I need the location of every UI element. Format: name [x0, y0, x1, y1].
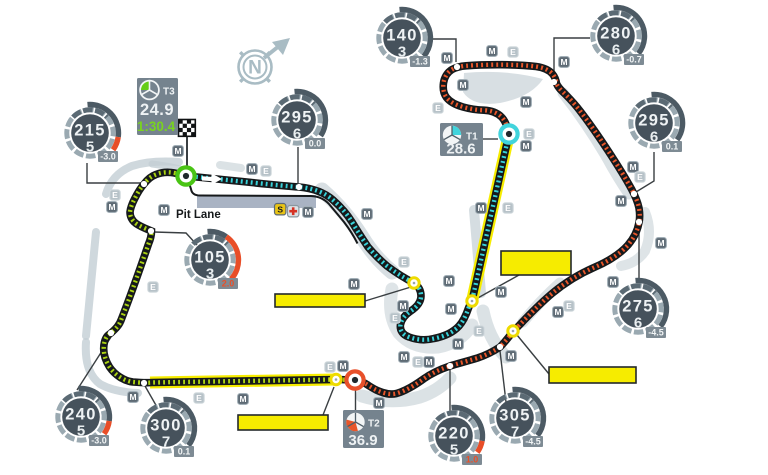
svg-text:M: M — [459, 80, 466, 90]
svg-text:36.9: 36.9 — [348, 432, 377, 449]
svg-text:M: M — [160, 205, 167, 215]
svg-text:M: M — [363, 209, 370, 219]
svg-text:E: E — [476, 326, 482, 336]
svg-text:M: M — [522, 141, 529, 151]
svg-text:240: 240 — [65, 406, 96, 424]
svg-text:M: M — [454, 339, 461, 349]
svg-text:M: M — [560, 57, 567, 67]
svg-text:1:30.4: 1:30.4 — [137, 119, 176, 134]
svg-text:M: M — [248, 164, 255, 174]
svg-text:0.0: 0.0 — [309, 139, 322, 149]
svg-text:E: E — [150, 282, 156, 292]
svg-text:M: M — [174, 146, 181, 156]
svg-text:M: M — [304, 207, 311, 217]
svg-text:E: E — [435, 103, 441, 113]
svg-text:M: M — [629, 162, 636, 172]
svg-text:5: 5 — [86, 139, 94, 156]
svg-text:E: E — [526, 129, 532, 139]
svg-text:M: M — [488, 46, 495, 56]
svg-text:M: M — [477, 203, 484, 213]
svg-text:M: M — [617, 196, 624, 206]
svg-text:280: 280 — [600, 25, 631, 43]
svg-text:-4.5: -4.5 — [525, 437, 541, 447]
svg-text:E: E — [263, 166, 269, 176]
svg-text:M: M — [657, 238, 664, 248]
svg-text:M: M — [447, 304, 454, 314]
svg-text:300: 300 — [150, 417, 181, 435]
svg-text:305: 305 — [499, 407, 530, 425]
svg-text:220: 220 — [438, 425, 469, 443]
svg-text:7: 7 — [511, 424, 519, 441]
svg-text:295: 295 — [638, 112, 669, 130]
svg-text:3: 3 — [206, 266, 214, 283]
svg-text:M: M — [108, 202, 115, 212]
svg-text:0.1: 0.1 — [178, 447, 191, 457]
svg-text:E: E — [196, 393, 202, 403]
svg-text:24.9: 24.9 — [140, 101, 174, 119]
svg-text:M: M — [425, 357, 432, 367]
svg-text:M: M — [339, 361, 346, 371]
svg-text:E: E — [392, 313, 398, 323]
svg-text:-4.5: -4.5 — [648, 328, 664, 338]
svg-text:E: E — [327, 362, 333, 372]
svg-text:0.1: 0.1 — [666, 142, 679, 152]
svg-text:6: 6 — [650, 129, 658, 146]
svg-text:T3: T3 — [163, 87, 175, 98]
svg-text:M: M — [609, 277, 616, 287]
svg-text:Pit Lane: Pit Lane — [176, 209, 221, 221]
svg-text:-3.0: -3.0 — [91, 436, 107, 446]
svg-text:6: 6 — [293, 126, 301, 143]
svg-text:215: 215 — [74, 122, 105, 140]
svg-text:6: 6 — [612, 42, 620, 59]
svg-text:M: M — [399, 301, 406, 311]
svg-text:140: 140 — [386, 27, 417, 45]
svg-text:1.0: 1.0 — [466, 455, 479, 465]
svg-text:5: 5 — [77, 423, 85, 440]
svg-text:M: M — [400, 352, 407, 362]
svg-text:E: E — [566, 301, 572, 311]
svg-text:M: M — [350, 279, 357, 289]
svg-text:M: M — [507, 351, 514, 361]
svg-text:M: M — [443, 53, 450, 63]
svg-text:275: 275 — [622, 298, 653, 316]
svg-text:2.0: 2.0 — [222, 279, 235, 289]
svg-text:M: M — [375, 398, 382, 408]
svg-text:28.6: 28.6 — [446, 141, 475, 158]
svg-text:E: E — [505, 203, 511, 213]
svg-text:7: 7 — [162, 434, 170, 451]
svg-text:M: M — [239, 394, 246, 404]
svg-text:M: M — [129, 392, 136, 402]
svg-text:M: M — [554, 307, 561, 317]
svg-text:M: M — [522, 97, 529, 107]
svg-text:S: S — [277, 204, 283, 214]
svg-text:E: E — [401, 257, 407, 267]
svg-text:E: E — [637, 172, 643, 182]
svg-text:295: 295 — [281, 109, 312, 127]
svg-text:105: 105 — [194, 249, 225, 267]
svg-text:E: E — [415, 357, 421, 367]
svg-text:-0.7: -0.7 — [626, 55, 642, 65]
svg-text:E: E — [510, 47, 516, 57]
svg-text:5: 5 — [450, 442, 458, 459]
svg-text:6: 6 — [634, 315, 642, 332]
svg-text:N: N — [248, 58, 262, 79]
svg-text:-3.0: -3.0 — [100, 152, 116, 162]
svg-text:E: E — [112, 190, 118, 200]
svg-text:-1.3: -1.3 — [412, 57, 428, 67]
svg-text:M: M — [497, 287, 504, 297]
svg-text:3: 3 — [398, 44, 406, 61]
svg-text:M: M — [445, 276, 452, 286]
svg-text:T2: T2 — [368, 419, 380, 430]
